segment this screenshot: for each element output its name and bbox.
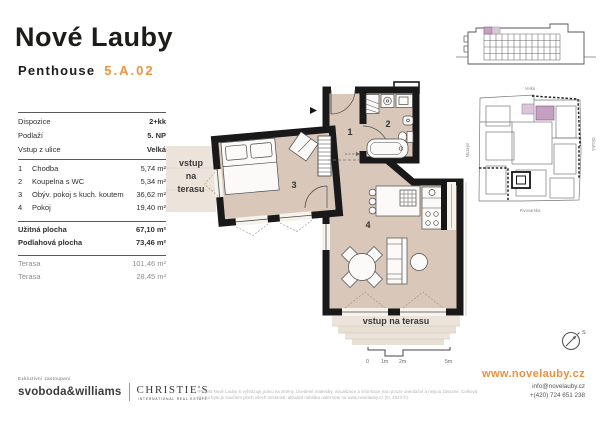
room-row: 3 Obýv. pokoj s kuch. koutem 36,62 m² xyxy=(18,188,166,201)
room-name: Pokoj xyxy=(32,201,136,214)
scale-bar: 0 1m 2m 5m xyxy=(366,347,452,365)
scale-tick: 0 xyxy=(366,359,369,365)
phone-link[interactable]: +(420) 724 651 238 xyxy=(530,392,585,399)
shelving xyxy=(366,95,379,114)
terrace-row: Terasa 101,46 m² xyxy=(18,258,166,271)
terrace-rows: Terasa 101,46 m² Terasa 28,45 m² xyxy=(18,256,166,285)
summary-row: Dispozice 2+kk xyxy=(18,115,166,129)
bath-counter-sink xyxy=(396,95,413,108)
info-panel: Dispozice 2+kk Podlaží 5. NP Vstup z uli… xyxy=(18,112,166,285)
coffee-table xyxy=(411,254,428,271)
scale-tick: 1m xyxy=(381,359,388,365)
unit-subtitle: Penthouse5.A.02 xyxy=(18,63,155,78)
terrace-label: Terasa xyxy=(18,271,41,284)
sofa xyxy=(387,238,407,284)
room-row: 1 Chodba 5,74 m² xyxy=(18,162,166,175)
brochure-page: Nové Lauby Penthouse5.A.02 Dispozice 2+k… xyxy=(0,0,600,424)
room-name: Chodba xyxy=(32,162,141,175)
washing-machine xyxy=(381,95,394,108)
street-label-bottom: Pivovarská xyxy=(520,208,541,213)
bar-stool xyxy=(369,189,376,196)
unit-location-secondary xyxy=(522,104,534,114)
room-number: 4 xyxy=(18,201,32,214)
room-number: 3 xyxy=(18,188,32,201)
bathtub xyxy=(367,139,408,158)
floor-plan: vstup na terasu vstup na terasu xyxy=(160,78,472,368)
room-label-1: 1 xyxy=(347,127,352,137)
summary-label: Podlaží xyxy=(18,129,43,143)
terrace-row: Terasa 28,45 m² xyxy=(18,271,166,284)
street-label-left: Muzejní xyxy=(465,142,470,157)
room-number: 1 xyxy=(18,162,32,175)
right-window xyxy=(441,180,456,230)
summary-label: Dispozice xyxy=(18,115,51,129)
landmark-building xyxy=(512,172,530,188)
washbasin xyxy=(403,116,413,125)
street-label-right: Dlouhá xyxy=(591,137,596,151)
total-row: Podlahová plocha 73,46 m² xyxy=(18,237,166,250)
email-link[interactable]: info@novelauby.cz xyxy=(532,383,585,390)
total-label: Užitná plocha xyxy=(18,224,67,237)
site-plan: Velká Muzejní Pivovarská Dlouhá xyxy=(462,82,598,214)
total-row: Užitná plocha 67,10 m² xyxy=(18,224,166,237)
unit-location-highlight xyxy=(536,106,554,120)
terrace-left: vstup na terasu xyxy=(166,146,216,212)
compass-north-label: S xyxy=(582,330,586,336)
svoboda-williams-logo: svoboda&williams xyxy=(18,386,122,398)
scale-tick: 5m xyxy=(445,359,452,365)
kitchen-counter xyxy=(422,187,442,229)
room-label-3: 3 xyxy=(291,180,296,190)
unit-highlight-secondary xyxy=(492,27,500,34)
total-label: Podlahová plocha xyxy=(18,237,82,250)
room-row: 4 Pokoj 19,40 m² xyxy=(18,201,166,214)
living-left-window xyxy=(322,224,330,250)
disclaimer: *Projekt Nové Lauby si vyhrazuje právo n… xyxy=(197,389,483,401)
unit-id: 5.A.02 xyxy=(104,63,154,78)
compass-icon: S xyxy=(556,324,590,358)
agency-logos: svoboda&williams CHRISTIE'S INTERNATIONA… xyxy=(18,383,209,401)
website-link[interactable]: www.novelauby.cz xyxy=(482,368,585,380)
brand-logo: Nové Lauby xyxy=(15,22,173,53)
unit-type: Penthouse xyxy=(18,63,95,78)
room-label-4: 4 xyxy=(365,220,370,230)
summary-label: Vstup z ulice xyxy=(18,143,61,157)
total-rows: Užitná plocha 67,10 m² Podlahová plocha … xyxy=(18,222,166,251)
room-rows: 1 Chodba 5,74 m² 2 Koupelna s WC 5,34 m²… xyxy=(18,160,166,216)
bed xyxy=(221,138,279,195)
exclusive-label: Exkluzivní zastoupení xyxy=(18,376,71,381)
summary-row: Podlaží 5. NP xyxy=(18,129,166,143)
scale-tick: 2m xyxy=(399,359,406,365)
entry-arrow-icon xyxy=(310,107,317,114)
terrace-left-label: na xyxy=(186,171,197,181)
radiator xyxy=(318,136,331,176)
street-label-top: Velká xyxy=(525,86,536,91)
terrace-label: Terasa xyxy=(18,258,41,271)
bar-stool xyxy=(369,198,376,205)
bar-stool xyxy=(369,207,376,214)
logo-divider xyxy=(129,383,130,401)
room-name: Koupelna s WC xyxy=(32,175,141,188)
kitchen-island xyxy=(369,186,420,216)
room-label-2: 2 xyxy=(385,119,390,129)
terrace-left-label: vstup xyxy=(179,158,204,168)
terrace-bottom-label: vstup na terasu xyxy=(363,316,430,326)
unit-highlight xyxy=(484,27,492,34)
room-name: Obýv. pokoj s kuch. koutem xyxy=(32,188,136,201)
building-elevation xyxy=(454,12,596,78)
room-number: 2 xyxy=(18,175,32,188)
terrace-left-label: terasu xyxy=(177,184,204,194)
summary-row: Vstup z ulice Velká xyxy=(18,143,166,157)
room-row: 2 Koupelna s WC 5,34 m² xyxy=(18,175,166,188)
summary-rows: Dispozice 2+kk Podlaží 5. NP Vstup z uli… xyxy=(18,113,166,159)
